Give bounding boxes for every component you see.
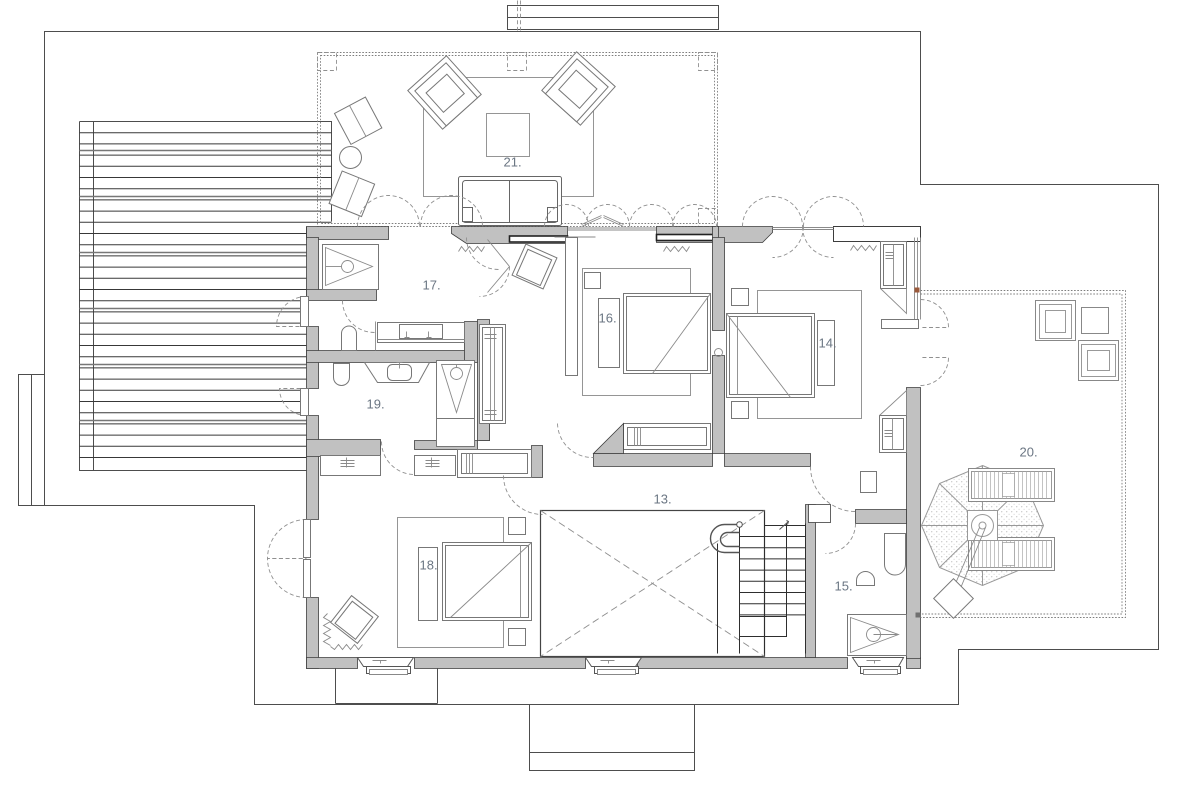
svg-text:17.: 17.	[423, 278, 441, 293]
svg-text:18.: 18.	[420, 558, 438, 573]
svg-text:16.: 16.	[599, 311, 617, 326]
svg-text:21.: 21.	[504, 155, 522, 170]
svg-text:15.: 15.	[835, 579, 853, 594]
svg-text:14.: 14.	[819, 336, 837, 351]
svg-text:19.: 19.	[367, 397, 385, 412]
svg-text:13.: 13.	[654, 492, 672, 507]
svg-text:20.: 20.	[1020, 445, 1038, 460]
